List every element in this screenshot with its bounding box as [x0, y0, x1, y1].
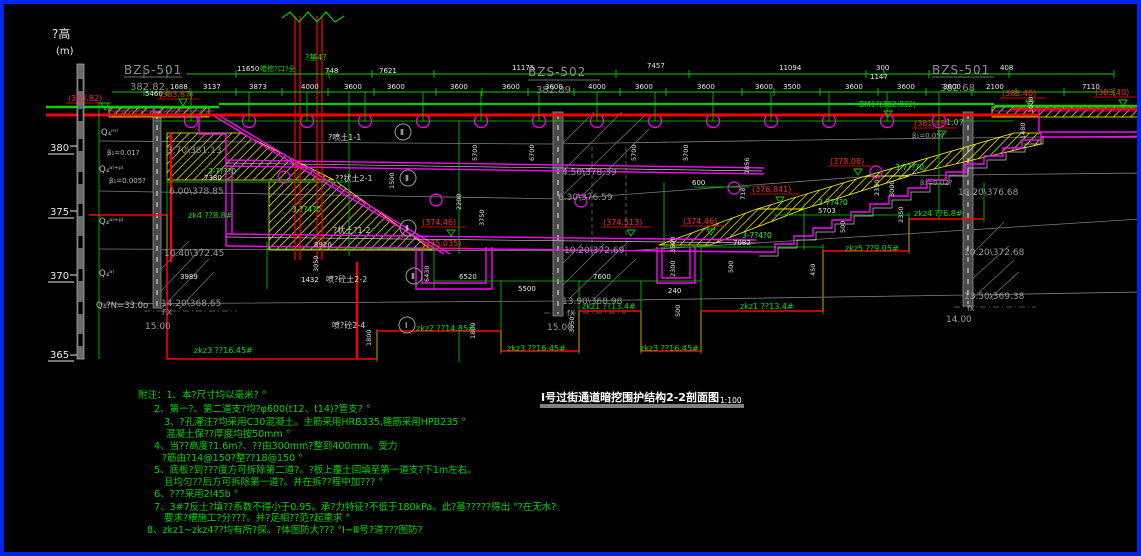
pile-tip-mark: fx — [967, 304, 975, 313]
cad-canvas: ?高 (m) 380 375 370 365 Q₄ᵐˡ β₁=0.01? Q₄ᵃ… — [0, 0, 1141, 556]
borehole-label: zkz1 ??13.4# — [582, 302, 636, 311]
drawing-scale: 1:100 — [720, 396, 742, 405]
dim-label: 4000 — [588, 83, 606, 91]
dim-label: 1000 — [1027, 96, 1035, 113]
note-line: 附注：1、本?尺寸均以毫米? ° — [138, 389, 266, 401]
axis-tick: 365 — [50, 350, 69, 361]
borehole-label: zkz1 ??13.4# — [740, 302, 794, 311]
dim-label: 6430 — [423, 265, 431, 282]
drawing-title: Ⅰ号过街通道暗挖围护结构2-2剖面图 — [541, 390, 719, 404]
dim-label: 5703 — [818, 207, 836, 215]
soil-nail-label: 3-7?4?0 — [818, 198, 848, 207]
dim-label: 300 — [876, 64, 889, 72]
depth-elevation-label: 13.50\369.38 — [964, 292, 1025, 302]
soil-param: β₁=0.005? — [109, 177, 146, 185]
note-line: 3、?孔灌注?均采用C30混凝土。主筋采用HRB335,箍筋采用HPB235 ° — [164, 416, 466, 428]
depth-elevation-label: 6.00\378.85 — [169, 187, 224, 197]
dim-label: 5700 — [471, 144, 479, 161]
dim-label: 11650 — [237, 65, 259, 73]
red-elevation-tag: (383.87) — [159, 90, 193, 99]
dim-label: 450 — [809, 264, 817, 276]
dim-label: 5700 — [682, 144, 690, 161]
support-type-label: ?喷土1-1 — [328, 132, 361, 142]
depth-elevation-label: 6.30\376.59 — [558, 193, 613, 203]
soil-layer-label: Q₄ᵃˡ⁺ᵖˡ — [99, 165, 123, 175]
axis-tick: 380 — [50, 143, 69, 154]
red-elevation-tag: (378.08) — [830, 157, 864, 166]
section-marker-numeral: Ⅰ — [405, 321, 407, 330]
pile-tip-mark: fX — [567, 309, 576, 318]
dim-label: 7621 — [379, 67, 397, 75]
dim-label: 3137 — [203, 83, 221, 91]
dim-label: 11094 — [779, 64, 802, 72]
dim-label: 748 — [325, 67, 338, 75]
dim-label: 3600 — [450, 83, 468, 91]
existing-pile-note: ?基4? — [305, 52, 327, 62]
dim-label: 1800 — [365, 329, 373, 346]
red-elevation-tag: (376.841) — [752, 185, 791, 194]
ground-line — [46, 106, 1141, 107]
dim-label: 3500 — [783, 83, 801, 91]
break-line — [282, 12, 344, 22]
red-elevation-tag: (383.40) — [1002, 89, 1036, 98]
note-line: 8、zkz1~zkz4??均有所?探。?体图防大??? °Ⅰ~Ⅲ号?道???图防… — [147, 524, 423, 536]
dim-label: 3600 — [697, 83, 715, 91]
axis-tick: 370 — [50, 271, 69, 282]
portal-note: 暗挖?口?全 — [260, 64, 295, 73]
grid-header: BZS-501 — [932, 63, 990, 77]
dim-label: 3600 — [897, 83, 915, 91]
dim-label: 3989 — [180, 273, 198, 281]
section-marker-numeral: Ⅱ — [405, 174, 409, 183]
dim-label: 240 — [668, 287, 681, 295]
red-elevation-tag: (374.513) — [603, 218, 642, 227]
dim-label: 2350 — [897, 206, 905, 223]
pile-tip-mark: FX — [162, 308, 173, 317]
dim-label: 7082 — [733, 239, 751, 247]
dim-label: 3600 — [502, 83, 520, 91]
soil-nail-label: 3-7?4?0 — [742, 231, 772, 240]
axis-title: ?高 — [52, 26, 70, 41]
section-marker-numeral: Ⅱ — [411, 272, 415, 281]
dim-label: 500 — [727, 261, 735, 273]
pile-depth: 14.00 — [946, 315, 972, 325]
soil-nail-label: 3-7???0 — [895, 163, 924, 172]
support-type-label: ?状土?1-2 — [333, 225, 371, 235]
borehole-label: zkz3 ??16.45# — [640, 344, 699, 353]
soil-layer-label: Q₄ᵐˡ — [101, 128, 118, 138]
note-line: 混凝土保??厚度均按50mm ° — [166, 428, 290, 440]
soil-nail-label: 3-????0 — [208, 167, 236, 176]
soil-param: β₁=0.02? — [920, 179, 953, 187]
dim-label: 1432 — [301, 276, 319, 284]
axis-unit: (m) — [56, 46, 74, 57]
dim-label: 3000 — [888, 180, 896, 197]
note-line: 且均匀??后方可拆除第一道?。并在拆??程中加??? ° — [164, 476, 383, 488]
pile-depth: 15.00 — [145, 322, 171, 332]
grid-header: BZS-502 — [528, 65, 586, 79]
soil-param: β₁=0.05? — [912, 132, 945, 140]
note-line: 要求?槽施工?分???。并?足相??范?起重求 ° — [164, 512, 350, 524]
red-elevation-tag: (374.46) — [683, 217, 717, 226]
borehole-label: zkz3 ??16.45# — [194, 346, 253, 355]
note-line: 7、3#7反土?填??系数不得小于0.95。承?力特征?不低于180kPa。此?… — [154, 501, 556, 513]
dim-label: 7600 — [593, 273, 611, 281]
dim-label: 600 — [692, 179, 705, 187]
dim-label: 6520 — [459, 273, 477, 281]
section-marker-numeral: Ⅱ — [405, 224, 409, 233]
dim-label: 2200 — [455, 193, 463, 210]
soil-layer-label: Q₄ᵃˡ — [99, 269, 114, 279]
dim-label: 1500 — [388, 172, 396, 189]
dim-label: 500 — [839, 221, 847, 233]
dim-label: 6700 — [528, 144, 536, 161]
dim-label: 8920 — [314, 241, 332, 249]
dim-label: 1147 — [870, 73, 888, 81]
red-elevation-tag: (383.82) — [68, 94, 102, 103]
depth-elevation-label: 3.70\381.13 — [167, 146, 222, 156]
section-marker-numeral: Ⅱ — [400, 128, 404, 137]
dim-label: 1480 — [1019, 122, 1027, 139]
borehole-label: zkz4 ??6.8# — [914, 209, 963, 218]
note-line: 6、???采用2I45b ° — [154, 489, 238, 500]
soil-layer-label: Q₄?N=33.0o — [96, 301, 148, 311]
axis-tick: 375 — [50, 207, 69, 218]
dim-label: 3050 — [312, 255, 320, 272]
dim-label: 3600 — [344, 83, 362, 91]
support-type-label: ??状土2-1 — [335, 173, 373, 183]
red-elevation-tag: (381.48) — [914, 119, 948, 128]
red-elevation-tag: (374.46) — [422, 218, 456, 227]
dim-label: 5700 — [630, 144, 638, 161]
offset-value: 1.07 — [946, 118, 964, 127]
note-line: 2、第一?、第二道支?均?φ600(t12、t14)?管支? ° — [154, 403, 370, 415]
dim-label: 500 — [674, 305, 682, 317]
dim-label: 7457 — [647, 62, 665, 70]
dim-label: 3600 — [545, 83, 563, 91]
depth-elevation-label: 4.50\378.39 — [562, 168, 617, 178]
dim-label: 3600 — [845, 83, 863, 91]
red-elevation-tag: (383.40) — [1095, 88, 1129, 97]
dim-label: 718 — [739, 188, 747, 200]
dim-label: 4000 — [301, 83, 319, 91]
dim-label: 3873 — [249, 83, 267, 91]
dim-label: 3500 — [669, 236, 677, 253]
pile-depth: 15.00 — [547, 323, 573, 333]
note-line: 4、当??高度?1.6m?、??由300mm?整到400mm。受力 — [154, 440, 397, 452]
depth-elevation-label: 10.20\376.68 — [958, 188, 1019, 198]
note-line: ?筋由?14@150?整??18@150 ° — [162, 452, 303, 464]
dim-label: 1856 — [743, 157, 751, 174]
dim-label: 2300 — [669, 260, 677, 277]
soil-nail-wedge — [269, 182, 432, 250]
title-underline — [540, 405, 744, 407]
depth-elevation-label: 10.20\372.69 — [564, 246, 625, 256]
dim-label: 2350 — [873, 179, 881, 196]
soil-param: β₁=0.01? — [107, 149, 140, 157]
grid-header: BZS-501 — [124, 63, 182, 77]
soil-nail-label: 3-??4?0 — [292, 205, 321, 214]
benchmark-note: BM1?(382.832) — [859, 100, 916, 109]
dim-label: 3600 — [635, 83, 653, 91]
dim-label: 5500 — [518, 285, 536, 293]
borehole-bottom-line — [89, 215, 984, 359]
soil-nail-wedge — [866, 133, 1041, 176]
dim-label: 11175 — [512, 64, 534, 72]
support-type-label: 喷?砼2-4 — [332, 320, 365, 330]
borehole-label: zkz3 ??16.45# — [507, 344, 566, 353]
dim-label: 3600 — [387, 83, 405, 91]
red-elevation-tag: (375.035) — [422, 239, 461, 248]
note-line: 5、底板?到???度方可拆除第二道?。?板上覆土回填至第一道支?下1m左右。 — [154, 464, 477, 476]
depth-elevation-label: 10.20\372.68 — [964, 248, 1025, 258]
borehole-label: zk4 ??8.8# — [188, 211, 233, 220]
dim-label: 3600 — [755, 83, 773, 91]
borehole-label: zkz2 ??14.85# — [416, 324, 475, 333]
dim-label: 3600 — [943, 83, 961, 91]
section-drawing: ?高 (m) 380 375 370 365 Q₄ᵐˡ β₁=0.01? Q₄ᵃ… — [4, 4, 1141, 556]
dim-label: 3750 — [478, 209, 486, 226]
depth-elevation-label: 10.40\372.45 — [164, 249, 224, 259]
support-type-label: 喷?砼土2-2 — [326, 274, 367, 284]
borehole-label: zkz5 ??9.05# — [845, 244, 899, 253]
soil-layer-label: Q₄ᵃˡ⁺ᵖˡ — [99, 217, 123, 227]
dim-label: 408 — [1000, 64, 1013, 72]
